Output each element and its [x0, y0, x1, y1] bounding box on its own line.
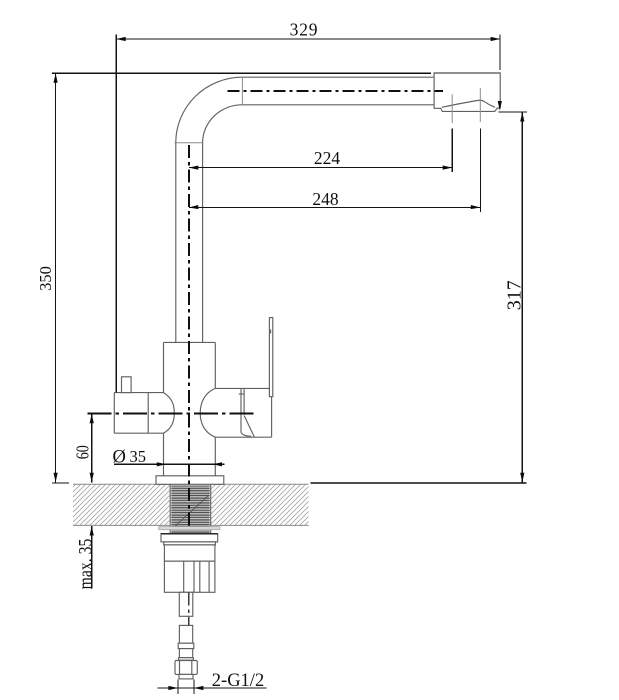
svg-text:248: 248: [312, 189, 339, 209]
svg-text:2-G1/2: 2-G1/2: [212, 671, 264, 691]
svg-text:317: 317: [504, 280, 526, 310]
svg-text:60: 60: [74, 445, 93, 459]
svg-text:Ø: Ø: [113, 448, 126, 468]
svg-text:329: 329: [290, 20, 319, 40]
svg-text:350: 350: [36, 266, 55, 291]
svg-text:224: 224: [314, 148, 341, 168]
svg-text:35: 35: [130, 447, 147, 466]
svg-text:max. 35: max. 35: [75, 539, 95, 590]
